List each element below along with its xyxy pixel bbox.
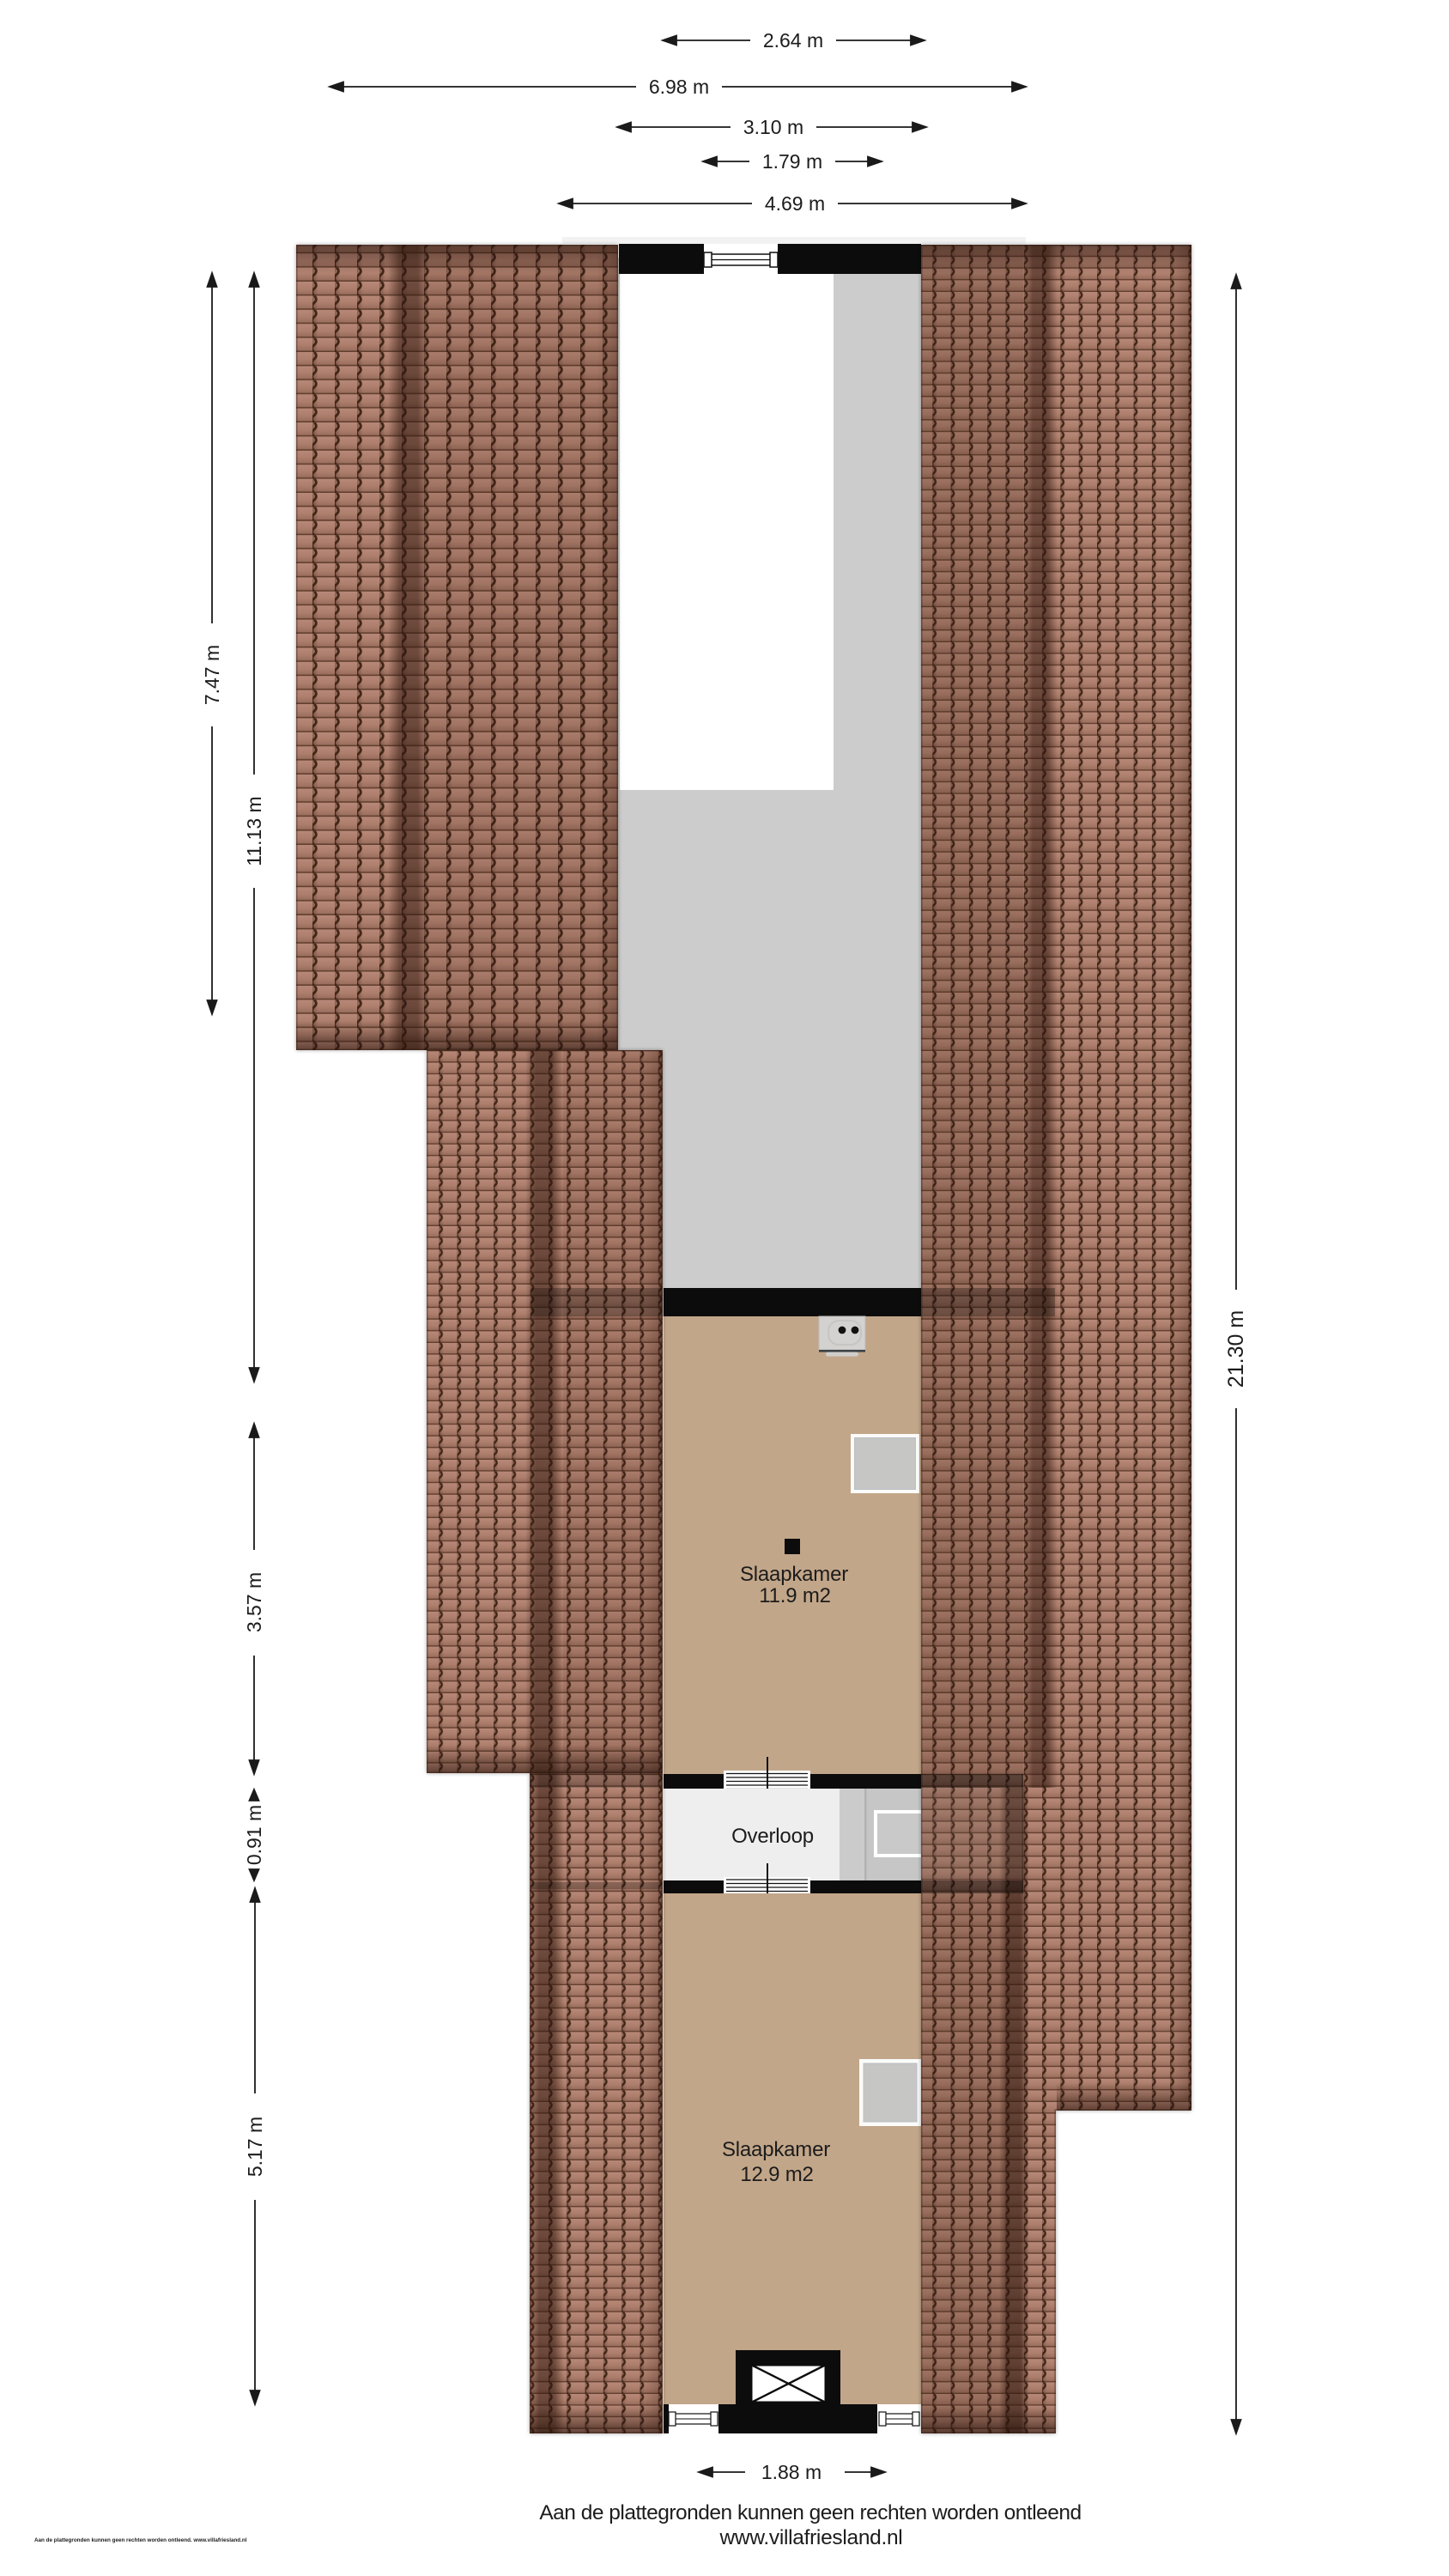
svg-text:11.9 m2: 11.9 m2 [759,1584,831,1607]
svg-text:1.79 m: 1.79 m [762,150,822,173]
svg-text:21.30 m: 21.30 m [1224,1310,1248,1388]
svg-text:Slaapkamer: Slaapkamer [722,2138,830,2161]
svg-text:11.13 m: 11.13 m [243,796,265,866]
svg-text:5.17 m: 5.17 m [244,2117,266,2177]
svg-text:3.57 m: 3.57 m [243,1572,265,1632]
svg-text:www.villafriesland.nl: www.villafriesland.nl [719,2526,903,2549]
svg-text:Slaapkamer: Slaapkamer [740,1563,848,1586]
svg-text:3.10 m: 3.10 m [743,116,803,138]
svg-text:7.47 m: 7.47 m [201,645,223,705]
svg-text:Aan de plattegronden kunnen ge: Aan de plattegronden kunnen geen rechten… [539,2501,1081,2524]
svg-text:4.69 m: 4.69 m [765,192,825,215]
svg-text:0.91 m: 0.91 m [243,1805,265,1865]
svg-text:12.9 m2: 12.9 m2 [740,2163,813,2186]
svg-text:2.64 m: 2.64 m [763,29,823,52]
svg-text:1.88 m: 1.88 m [761,2461,822,2483]
svg-text:6.98 m: 6.98 m [649,76,709,98]
svg-text:Overloop: Overloop [731,1825,814,1848]
svg-text:Aan de plattegronden kunnen ge: Aan de plattegronden kunnen geen rechten… [34,2537,247,2543]
